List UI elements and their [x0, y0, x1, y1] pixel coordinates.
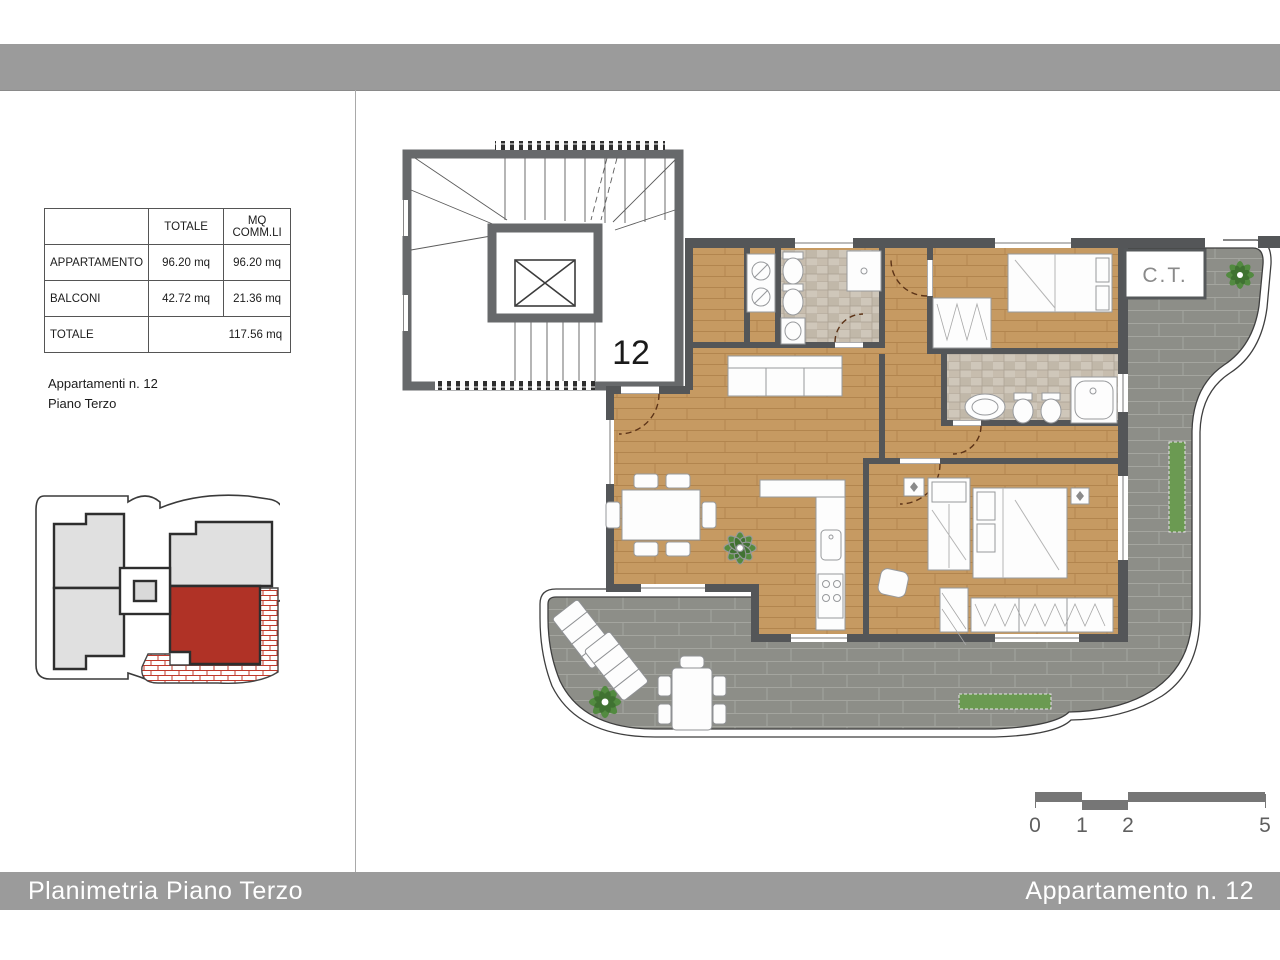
top-title-bar: [0, 44, 1280, 91]
chair: [877, 567, 910, 598]
plan-notes: Appartamenti n. 12 Piano Terzo: [48, 374, 158, 414]
scale-segment: [1035, 792, 1082, 802]
scale-label: 5: [1259, 814, 1271, 838]
stair-hatch-strip: [435, 381, 595, 390]
plant-icon: [724, 532, 756, 564]
scale-label: 0: [1029, 814, 1041, 838]
elevator-core: [134, 581, 156, 601]
note-floor: Piano Terzo: [48, 394, 158, 414]
hedge-planter: [959, 694, 1051, 709]
scale-bar: 0 1 2 5: [1030, 788, 1270, 840]
plant-icon: [1226, 261, 1254, 289]
elevator-cabin: [515, 260, 575, 306]
scale-segment: [1128, 792, 1265, 802]
row-balconi-totale: 42.72 mq: [149, 281, 224, 317]
stairwell: 12: [399, 141, 679, 390]
row-appartamento-comm: 96.20 mq: [224, 245, 291, 281]
ct-room: C.T.: [1125, 250, 1205, 298]
scale-segment: [1082, 800, 1128, 810]
row-totale-label: TOTALE: [45, 317, 149, 353]
apartment-lower-left: [54, 588, 124, 669]
wardrobe: [971, 598, 1113, 632]
row-balconi-label: BALCONI: [45, 281, 149, 317]
floor-plan-drawing: 12: [355, 90, 1280, 872]
hedge-planter: [1169, 442, 1185, 532]
header-mq-commli: MQ COMM.LI: [224, 209, 291, 245]
footer-right-title: Appartamento n. 12: [1025, 877, 1254, 906]
highlighted-apartment-12: [170, 586, 260, 664]
sofa: [728, 356, 842, 396]
table-row: BALCONI 42.72 mq 21.36 mq: [45, 281, 291, 317]
header-totale: TOTALE: [149, 209, 224, 245]
drawing-sheet: TOTALE MQ COMM.LI APPARTAMENTO 96.20 mq …: [0, 0, 1280, 960]
row-appartamento-totale: 96.20 mq: [149, 245, 224, 281]
scale-label: 1: [1076, 814, 1088, 838]
area-table: TOTALE MQ COMM.LI APPARTAMENTO 96.20 mq …: [44, 208, 291, 353]
table-row: APPARTAMENTO 96.20 mq 96.20 mq: [45, 245, 291, 281]
stair-hatch-strip: [495, 141, 665, 150]
scale-tick: [1265, 794, 1266, 808]
row-totale-value: 117.56 mq: [149, 317, 291, 353]
unit-number-label: 12: [612, 334, 650, 372]
laundry-cabinet: [747, 254, 775, 312]
scale-label: 2: [1122, 814, 1134, 838]
shower: [847, 251, 881, 291]
footer-title-bar: Planimetria Piano Terzo Appartamento n. …: [0, 872, 1280, 910]
note-apartment-number: Appartamenti n. 12: [48, 374, 158, 394]
row-appartamento-label: APPARTAMENTO: [45, 245, 149, 281]
table-row: TOTALE 117.56 mq: [45, 317, 291, 353]
footer-left-title: Planimetria Piano Terzo: [28, 877, 303, 906]
apartment-upper-left: [54, 514, 124, 588]
key-plan: [28, 486, 280, 688]
table-header-row: TOTALE MQ COMM.LI: [45, 209, 291, 245]
row-balconi-comm: 21.36 mq: [224, 281, 291, 317]
ct-label: C.T.: [1142, 264, 1187, 287]
header-empty: [45, 209, 149, 245]
